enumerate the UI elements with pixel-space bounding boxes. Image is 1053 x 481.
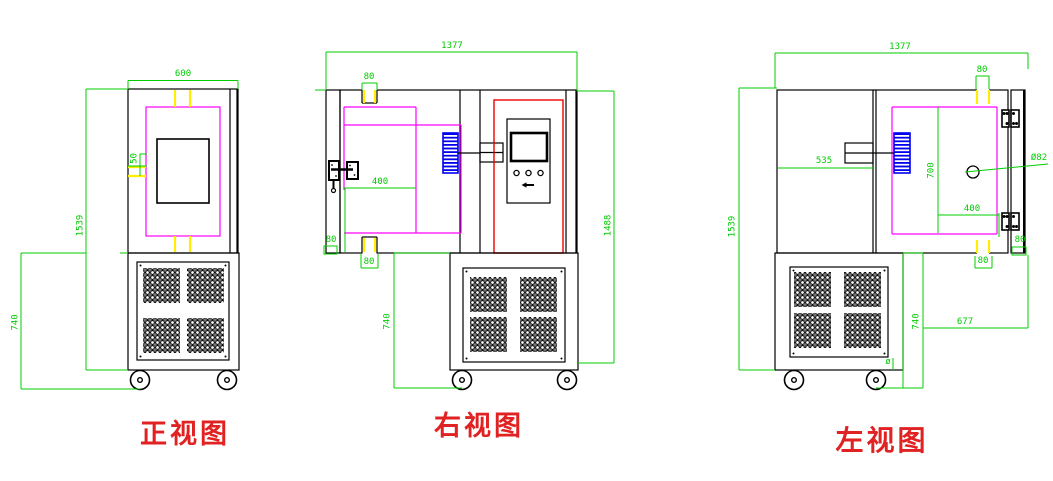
dim-front-base-height: 740 (11, 306, 22, 340)
touchscreen (511, 133, 547, 161)
dim-front-total-height: 1539 (76, 209, 87, 243)
dim-left-inner-width: 400 (954, 204, 990, 215)
control-panel-frame (494, 100, 563, 253)
door-hinge (1002, 110, 1019, 127)
dim-left-chamber-height: 700 (927, 154, 938, 188)
dim-left-top-width: 1377 (882, 42, 918, 53)
control-panel (507, 119, 550, 203)
right-dimension-lines (315, 52, 614, 388)
caster-wheel (785, 371, 804, 390)
dim-right-base-height: 740 (383, 305, 394, 339)
fan-evaporator (443, 133, 458, 173)
front-view-linework (21, 81, 239, 390)
front-base-unit (128, 253, 239, 390)
dim-left-base-offset: 677 (947, 317, 983, 328)
dim-left-total-height: 1539 (728, 210, 739, 244)
caster-wheel (218, 371, 237, 390)
dim-left-machine-depth: 535 (806, 156, 842, 167)
right-base-unit (450, 253, 578, 390)
drawing-linework (0, 0, 1053, 481)
door-hinge (1002, 213, 1019, 230)
dim-left-top-hinge: 80 (964, 65, 1000, 76)
caster-wheel (131, 371, 150, 390)
right-view-linework (315, 52, 614, 390)
vent-grille (137, 262, 229, 360)
cad-drawing-canvas: 600 1539 50 740 1377 80 400 1488 80 80 7… (0, 0, 1053, 481)
dim-right-door-edge: 80 (313, 235, 349, 246)
dim-left-port-mark: ø (882, 357, 894, 368)
power-switch (522, 182, 535, 187)
caster-wheel (453, 371, 472, 390)
dim-left-bottom-hinge: 80 (965, 256, 1001, 267)
fan-evaporator (894, 133, 910, 173)
control-button (538, 170, 543, 175)
fan-shaft-motor (458, 143, 503, 162)
left-view-linework (739, 53, 1048, 390)
left-base-unit (775, 253, 903, 390)
view-title-front: 正视图 (140, 412, 228, 451)
dim-front-top-width: 600 (165, 69, 201, 80)
view-title-right: 右视图 (433, 404, 525, 443)
dim-right-height: 1488 (604, 209, 615, 243)
right-hinge-marks (364, 90, 375, 252)
control-button (514, 170, 519, 175)
dim-right-inner-width: 400 (362, 177, 398, 188)
vent-grille (463, 268, 565, 362)
viewing-window (157, 139, 209, 203)
fan-shaft-motor (845, 143, 894, 163)
dim-left-base-height: 740 (912, 305, 923, 339)
control-button (526, 170, 531, 175)
dim-left-corner: 80 (1002, 235, 1038, 246)
dim-right-top-width: 1377 (434, 41, 470, 52)
dim-front-window-offset: 50 (130, 142, 141, 176)
front-cabinet-outline (128, 89, 238, 253)
vent-grille (790, 267, 888, 357)
dim-right-bottom-hinge: 80 (351, 257, 387, 268)
caster-wheel (558, 371, 577, 390)
dim-left-port-diameter: Ø82 (1021, 153, 1053, 164)
caster-wheel (867, 371, 886, 390)
view-title-left: 左视图 (834, 419, 930, 459)
dim-right-top-hinge: 80 (351, 72, 387, 83)
